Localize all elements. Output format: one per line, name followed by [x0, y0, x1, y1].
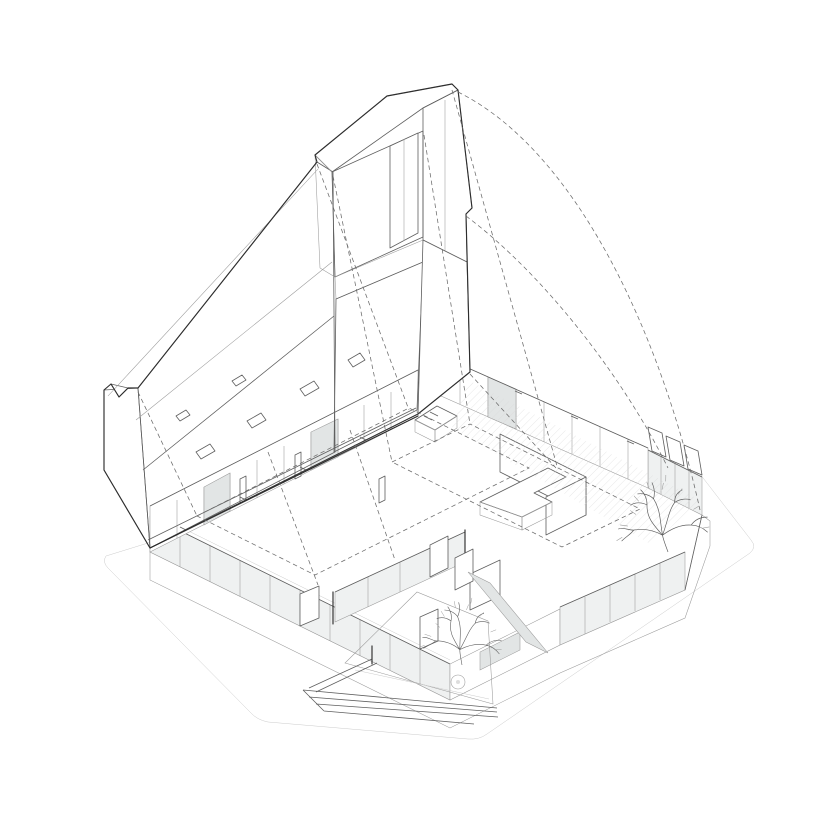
gable-end-band	[104, 388, 150, 548]
tower-fascia-band	[315, 84, 458, 172]
axonometric-house-drawing	[0, 0, 820, 820]
stud-band	[335, 240, 423, 299]
ridge-beam-inner	[108, 169, 318, 396]
column-post-3	[379, 476, 385, 503]
drawing-canvas	[0, 0, 820, 820]
paving-circle-center	[456, 680, 460, 684]
